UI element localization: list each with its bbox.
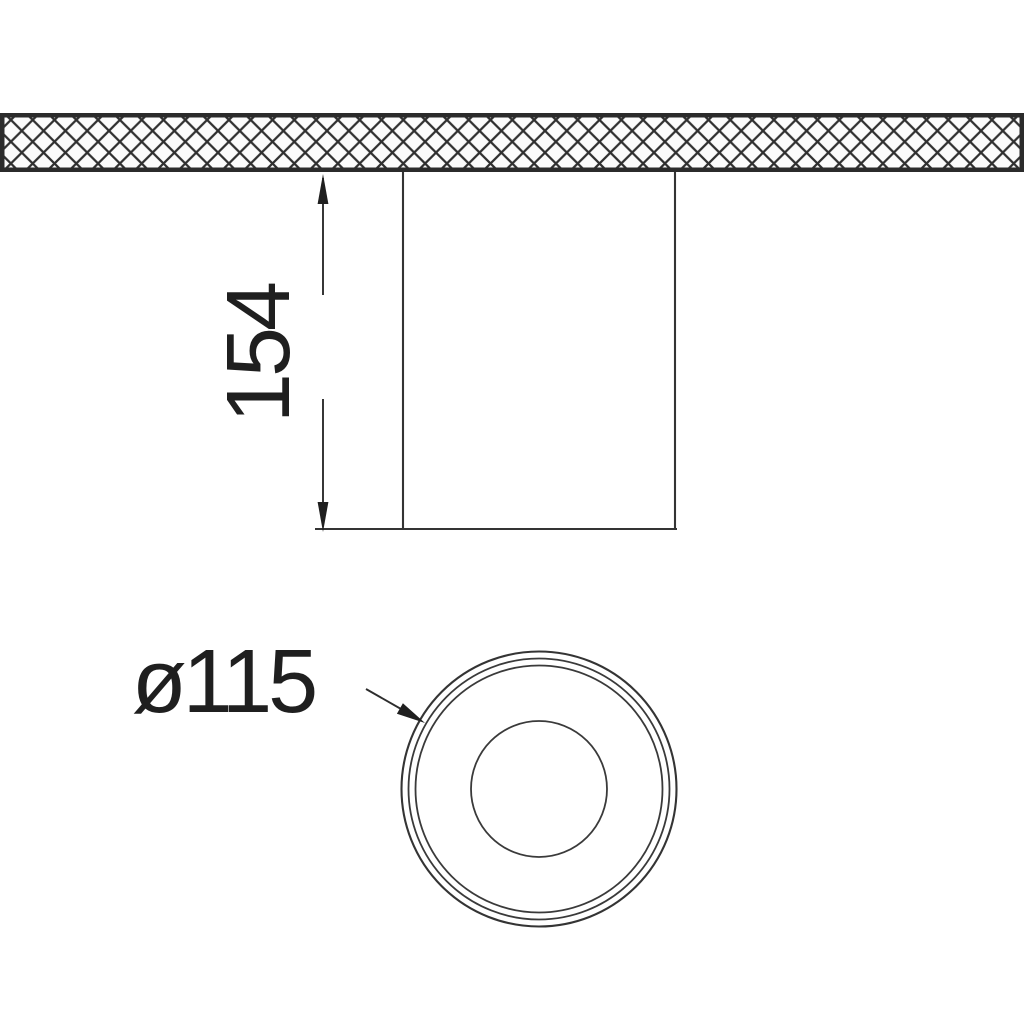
diameter-leader-arrow-icon [397,703,425,723]
side-view [315,172,677,529]
diameter-dimension-label: ø115 [132,632,315,732]
height-dimension: 154 [209,174,328,532]
top-view-inner-ring [416,666,663,913]
downlight-dimension-drawing: 154 ø115 [0,0,1024,1024]
diameter-dimension: ø115 [132,632,425,732]
top-view-lens-circle [471,721,607,857]
height-dimension-arrow-up-icon [318,174,329,204]
height-dimension-arrow-down-icon [318,502,329,532]
top-view-outer-ring [402,652,677,927]
ceiling-hatch-band [2,115,1022,170]
technical-drawing-canvas: 154 ø115 [0,0,1024,1024]
height-dimension-label: 154 [209,283,309,423]
ceiling-section [2,115,1022,170]
top-view-middle-ring [409,659,670,920]
top-view [402,652,677,927]
body-side-edges [403,172,675,529]
